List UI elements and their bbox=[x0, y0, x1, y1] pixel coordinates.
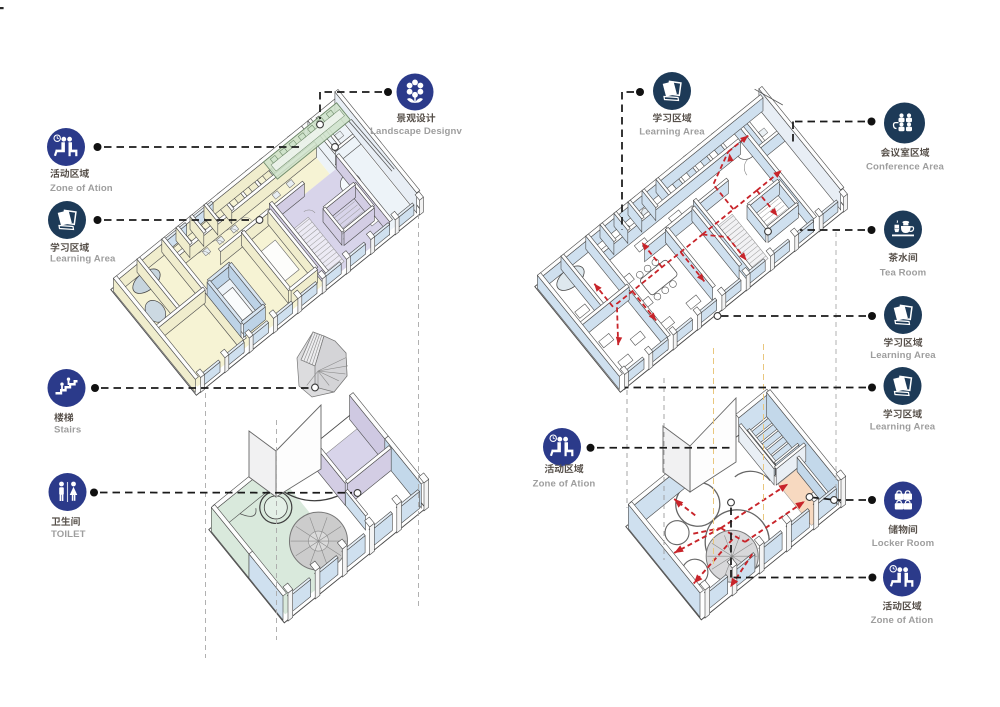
svg-text:Tea Room: Tea Room bbox=[880, 268, 926, 279]
svg-text:Zone of Ation: Zone of Ation bbox=[871, 615, 934, 626]
svg-text:Zone of Ation: Zone of Ation bbox=[533, 478, 596, 489]
svg-text:Zone of Ation: Zone of Ation bbox=[50, 183, 113, 194]
svg-text:Locker Room: Locker Room bbox=[872, 538, 934, 549]
svg-text:Learning Area: Learning Area bbox=[870, 422, 936, 433]
svg-text:Conference Area: Conference Area bbox=[866, 162, 944, 173]
svg-text:Learning Area: Learning Area bbox=[870, 350, 936, 361]
svg-text:Stairs: Stairs bbox=[54, 425, 81, 436]
svg-text:TOILET: TOILET bbox=[51, 529, 86, 540]
svg-text:Learning Area: Learning Area bbox=[50, 254, 116, 265]
svg-text:Learning Area: Learning Area bbox=[639, 127, 705, 138]
svg-text:Landscape Designv: Landscape Designv bbox=[370, 126, 462, 137]
